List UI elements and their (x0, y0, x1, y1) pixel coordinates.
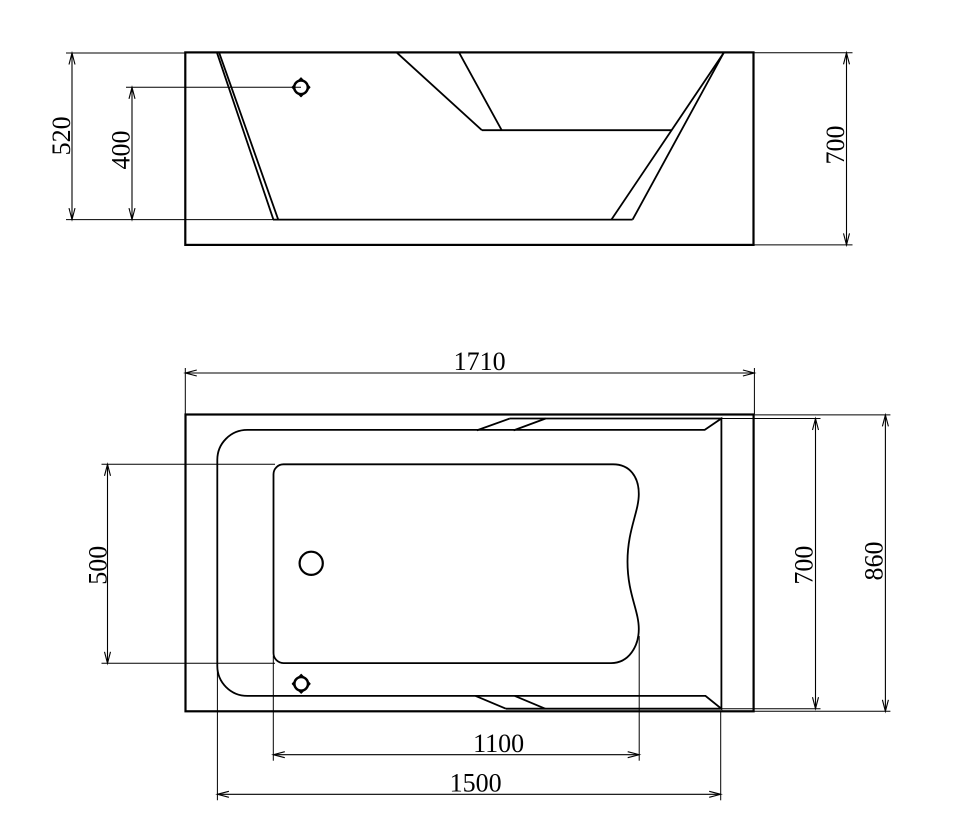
svg-text:520: 520 (47, 116, 76, 155)
svg-text:400: 400 (106, 131, 135, 170)
svg-text:700: 700 (790, 546, 819, 585)
svg-text:860: 860 (860, 542, 889, 581)
svg-text:500: 500 (83, 546, 112, 585)
svg-text:1710: 1710 (454, 347, 506, 376)
svg-text:700: 700 (821, 126, 850, 165)
svg-text:1100: 1100 (473, 729, 524, 758)
svg-text:1500: 1500 (450, 769, 502, 798)
